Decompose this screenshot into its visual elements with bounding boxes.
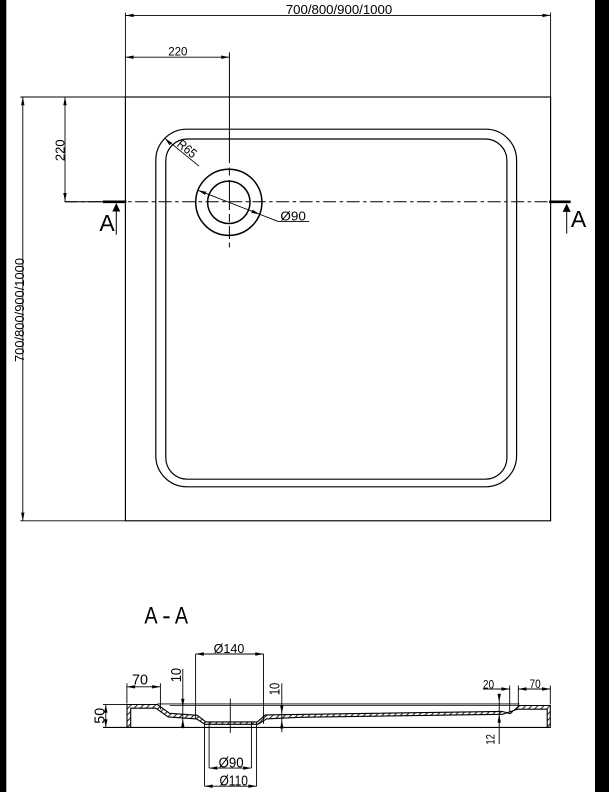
svg-text:A: A	[571, 206, 587, 232]
svg-text:Ø90: Ø90	[219, 754, 244, 771]
svg-text:220: 220	[52, 139, 67, 161]
svg-text:220: 220	[168, 47, 187, 59]
svg-text:12: 12	[483, 734, 497, 745]
svg-text:Ø140: Ø140	[214, 641, 245, 656]
svg-text:A: A	[144, 602, 157, 629]
svg-text:700/800/900/1000: 700/800/900/1000	[12, 258, 27, 362]
svg-text:50: 50	[93, 708, 109, 724]
svg-text:70: 70	[132, 673, 148, 689]
svg-text:70: 70	[530, 677, 541, 691]
svg-text:10: 10	[169, 668, 185, 682]
svg-text:A: A	[99, 210, 115, 236]
svg-text:A: A	[175, 602, 188, 629]
svg-text:10: 10	[267, 683, 283, 695]
svg-text:700/800/900/1000: 700/800/900/1000	[286, 2, 392, 17]
svg-text:R65: R65	[174, 136, 200, 161]
svg-text:20: 20	[483, 677, 494, 691]
svg-text:Ø110: Ø110	[220, 772, 248, 789]
svg-text:Ø90: Ø90	[280, 209, 306, 224]
